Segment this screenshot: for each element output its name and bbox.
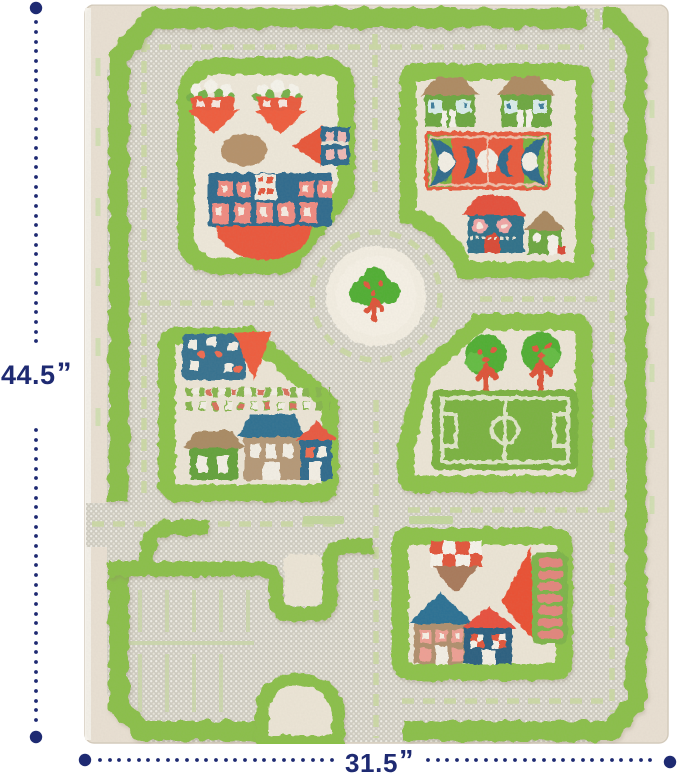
svg-text:31.5”: 31.5” (345, 745, 414, 773)
svg-text:44.5”: 44.5” (1, 357, 72, 390)
